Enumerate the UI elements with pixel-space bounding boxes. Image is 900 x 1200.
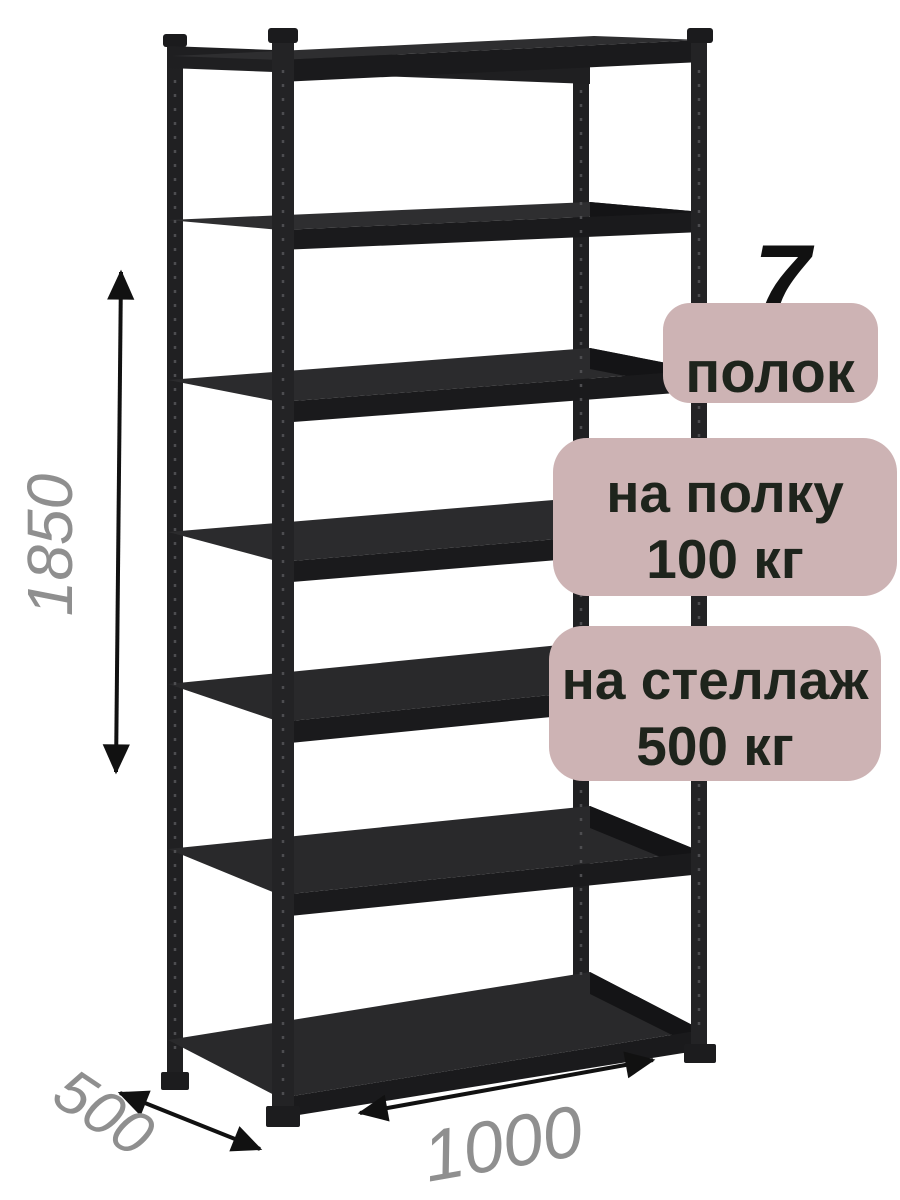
height-dimension: 1850 — [14, 272, 121, 772]
per-rack-load-line1: на стеллаж — [562, 649, 870, 711]
front-left-post — [272, 32, 294, 1110]
per-shelf-load-line2: 100 кг — [646, 528, 803, 590]
depth-value: 500 — [41, 1055, 165, 1170]
height-value: 1850 — [14, 473, 86, 616]
shelf-count-label: полок — [685, 340, 856, 405]
back-left-foot — [161, 1072, 189, 1090]
per-rack-load-line2: 500 кг — [636, 715, 793, 777]
back-left-post-cap — [163, 34, 187, 47]
shelf — [168, 348, 702, 423]
shelf — [168, 806, 702, 917]
shelf — [168, 202, 702, 250]
front-right-post-cap — [687, 28, 713, 43]
per-shelf-load-line1: на полку — [606, 462, 844, 524]
per-shelf-load-badge: на полку 100 кг — [553, 438, 897, 596]
per-rack-load-badge: на стеллаж 500 кг — [549, 626, 881, 781]
height-arrow-icon — [116, 272, 121, 772]
front-right-foot — [684, 1044, 716, 1063]
shelf — [168, 972, 702, 1118]
product-image: 1850 1000 500 7 полок на полку 100 кг на… — [0, 0, 900, 1200]
rack-illustration: 1850 1000 500 7 полок на полку 100 кг на… — [0, 0, 900, 1200]
front-left-foot — [266, 1106, 300, 1127]
depth-dimension: 500 — [41, 1055, 260, 1170]
width-value: 1000 — [417, 1091, 589, 1198]
front-left-post-cap — [268, 28, 298, 43]
